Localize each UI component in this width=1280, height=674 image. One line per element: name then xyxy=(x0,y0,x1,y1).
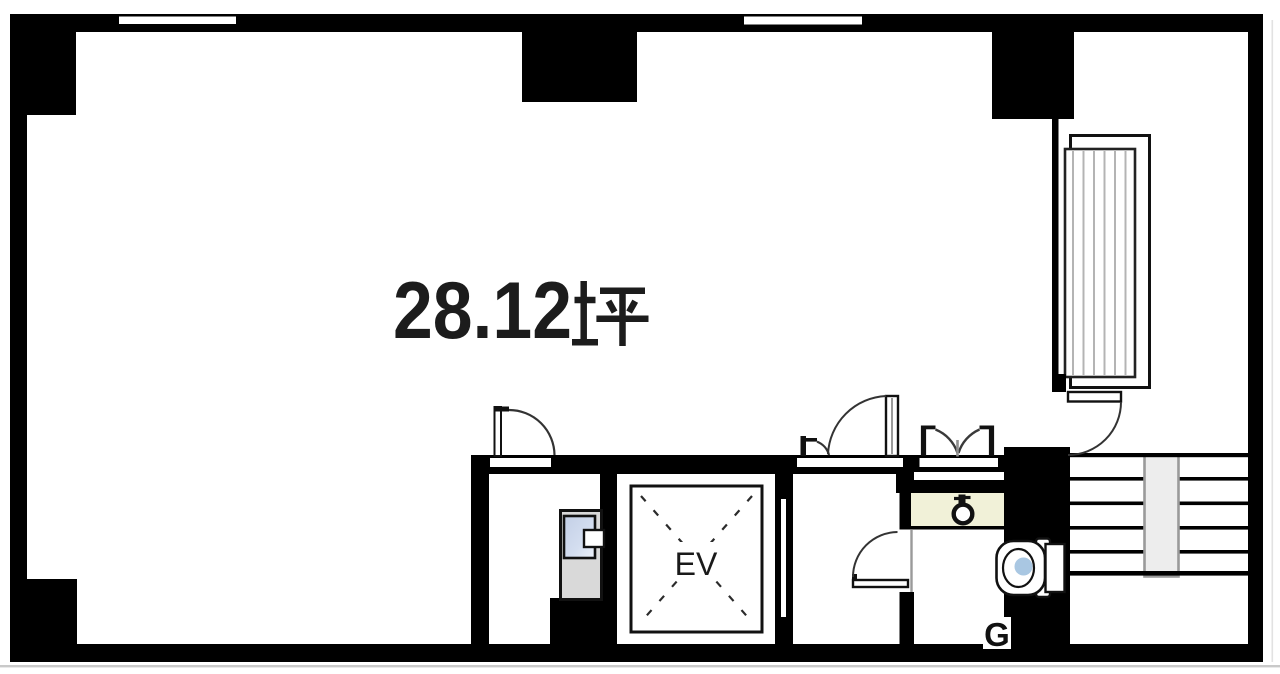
svg-text:28.12: 28.12 xyxy=(393,266,572,356)
svg-text:G: G xyxy=(984,616,1010,653)
svg-text:EV: EV xyxy=(675,546,718,582)
